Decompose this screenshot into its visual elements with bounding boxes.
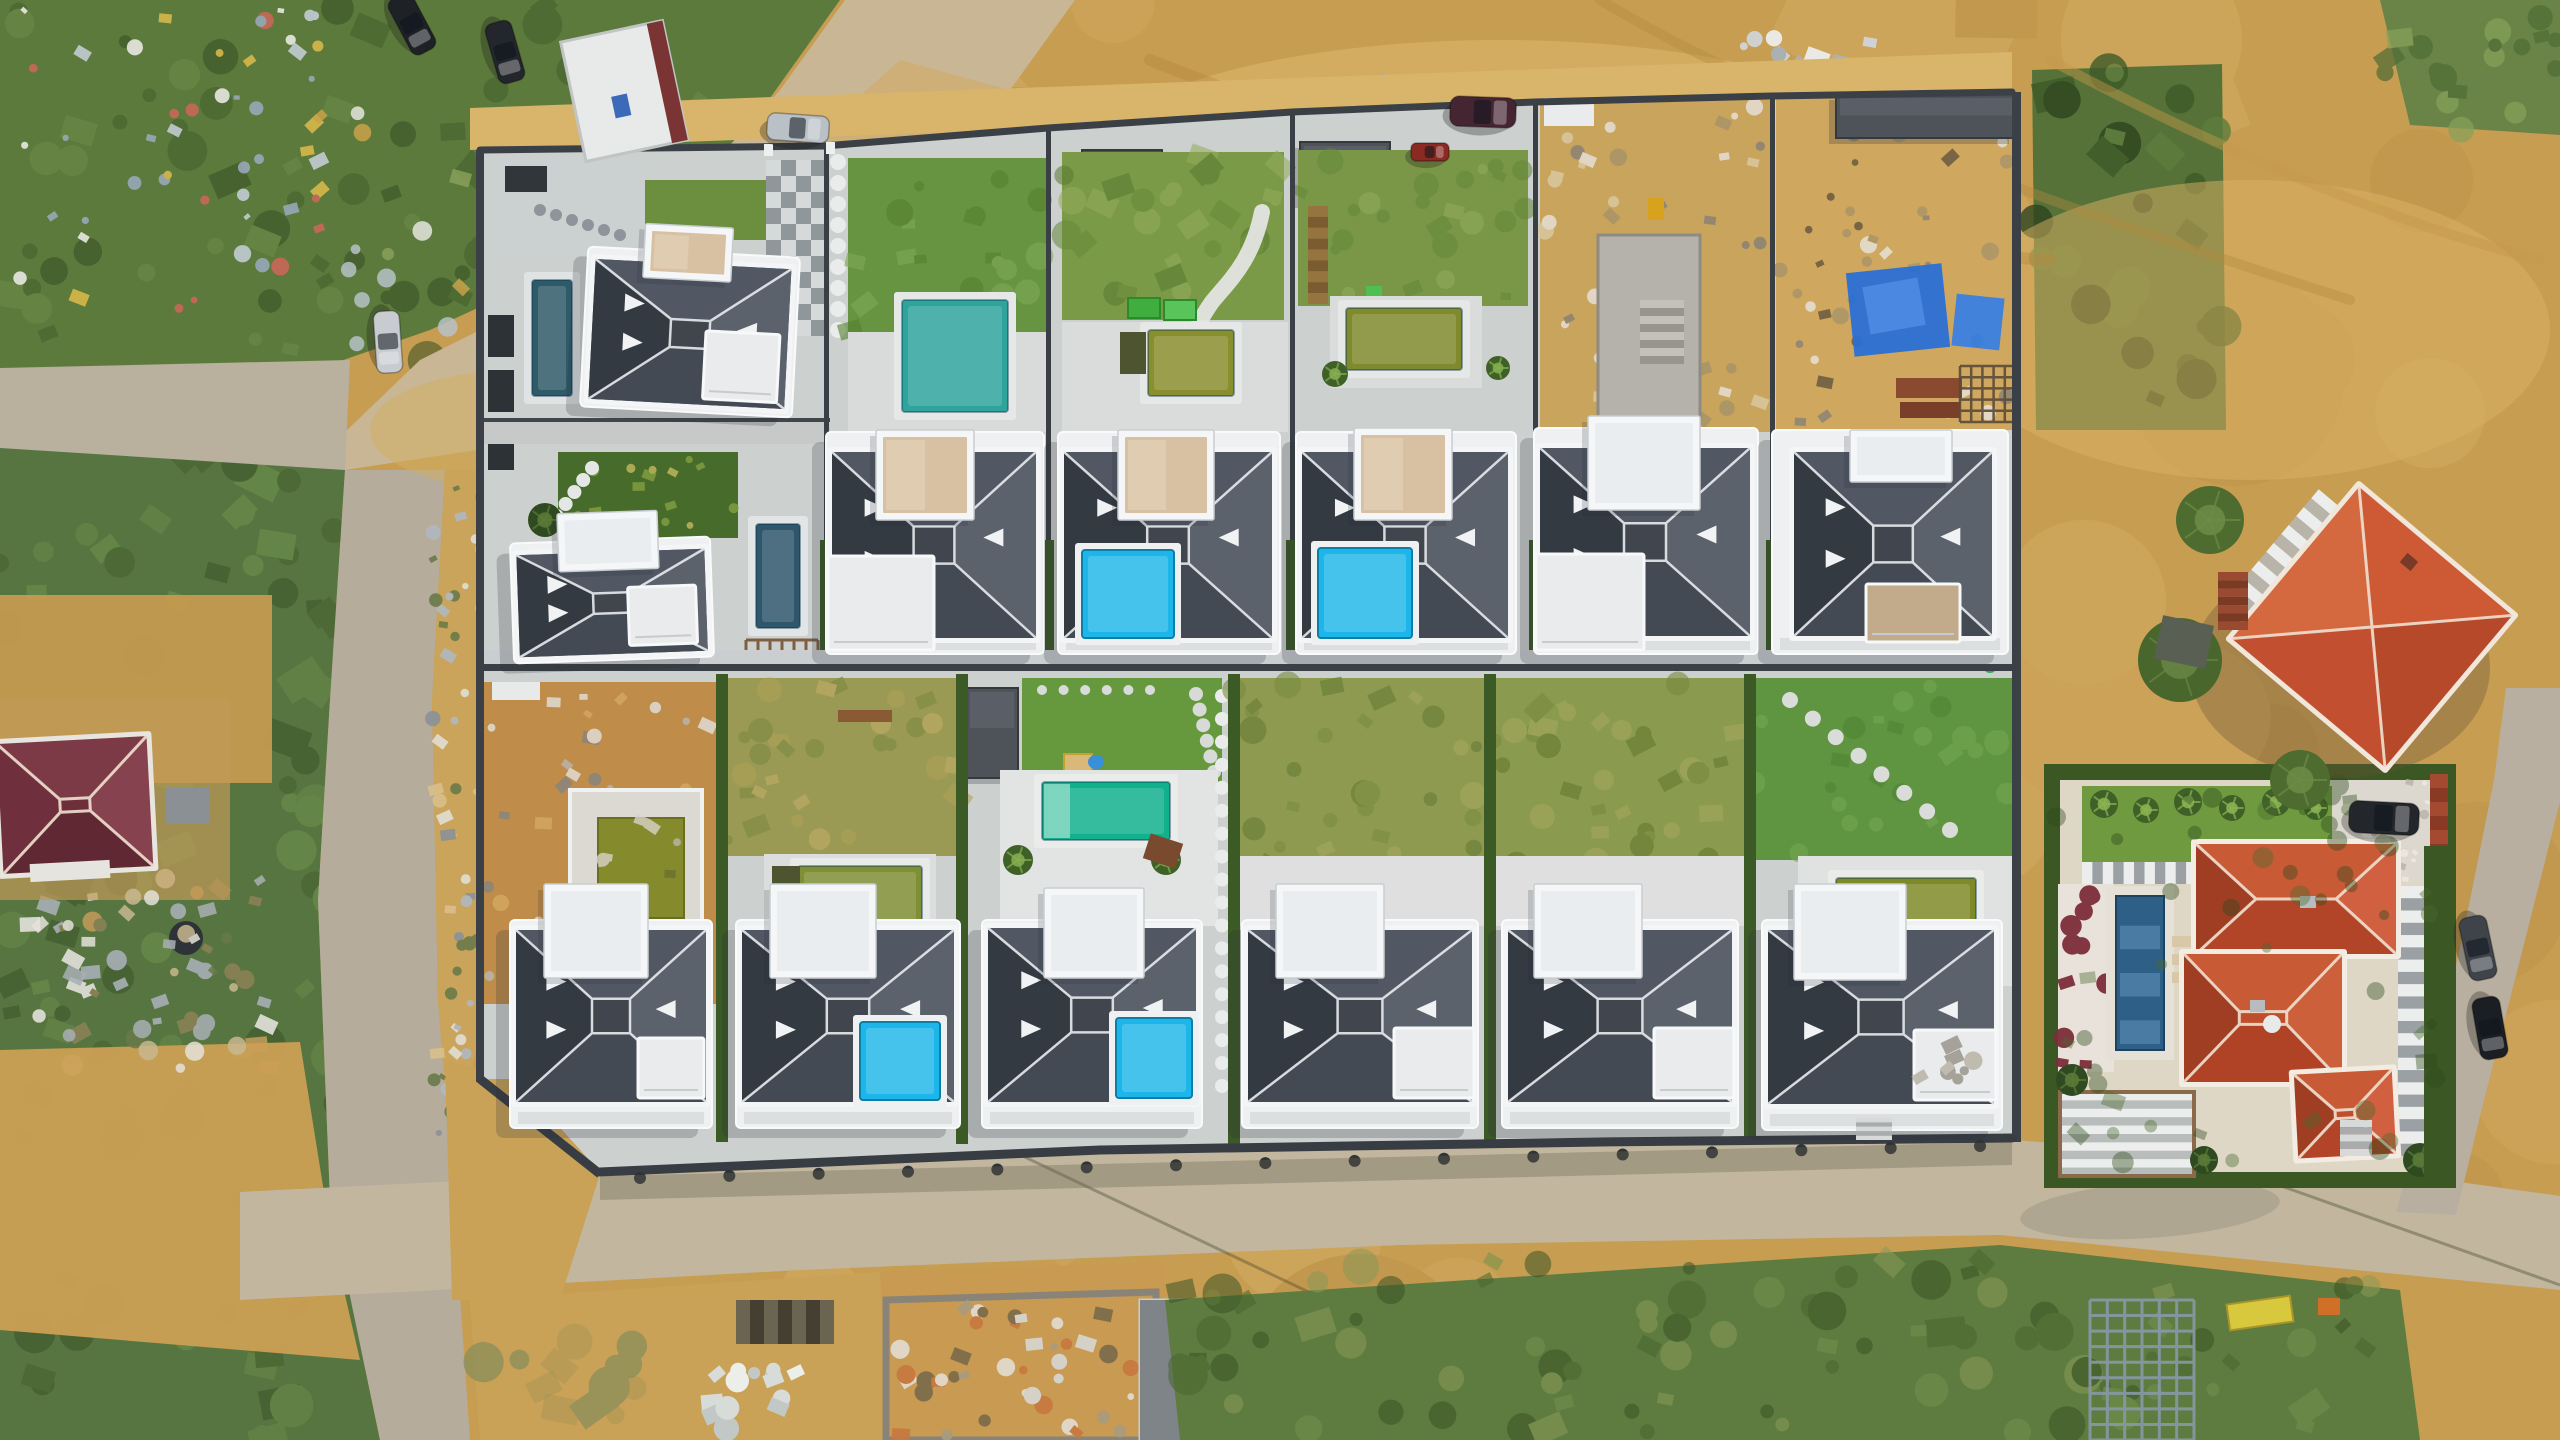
speck [2420, 810, 2430, 820]
speck [312, 195, 320, 203]
speck [499, 811, 510, 820]
speck [349, 336, 364, 351]
speck [1723, 723, 1747, 741]
speck [1015, 279, 1040, 304]
dot [1896, 785, 1912, 801]
speck [63, 920, 74, 931]
stripe [2398, 1082, 2426, 1094]
speck [1869, 817, 1883, 831]
speck [914, 254, 927, 264]
villa-pool-sheen [1122, 1024, 1186, 1092]
pool-plot3-olive [1140, 322, 1242, 404]
carport-sheen [970, 692, 1014, 728]
speck [1754, 715, 1768, 729]
speck [1913, 727, 1932, 746]
speck [133, 1020, 151, 1038]
speck [1495, 757, 1510, 772]
wall-right [2012, 92, 2021, 1142]
villa-terrace [990, 1112, 1194, 1124]
speck [997, 1358, 1015, 1376]
speck [1354, 781, 1380, 807]
dot [830, 175, 846, 191]
speck [1541, 1372, 1563, 1394]
car-glass [2374, 805, 2394, 832]
speck [661, 518, 669, 526]
speck [1160, 189, 1178, 207]
speck [1841, 815, 1858, 832]
skylight-sheen [653, 234, 689, 270]
speck [1794, 418, 1806, 427]
speck [2287, 1328, 2316, 1357]
speck [254, 154, 264, 164]
speck [1862, 256, 1872, 266]
red-house-scrub-3 [2270, 750, 2330, 810]
speck [588, 773, 601, 786]
stripe [1856, 1127, 1892, 1131]
speck [438, 621, 448, 628]
speck [1239, 716, 1267, 744]
stripe [2430, 830, 2448, 844]
speck [1054, 1374, 1064, 1384]
stripe [2218, 572, 2248, 580]
checker-cell [811, 208, 826, 224]
speck [255, 258, 269, 272]
dot [1828, 729, 1844, 745]
villa-bottom-1 [496, 884, 712, 1138]
skylight-sheen [886, 440, 925, 510]
speck [1630, 834, 1654, 858]
stripe [1856, 1118, 1892, 1122]
speck [1664, 822, 1680, 838]
speck [1608, 196, 1619, 207]
roof-ridge-cap [593, 592, 631, 614]
speck [1775, 1418, 1789, 1432]
speck [433, 793, 447, 807]
speck [1852, 159, 1859, 166]
speck [1287, 762, 1302, 777]
speck [1204, 240, 1221, 257]
roof-ridge-cap [1071, 998, 1113, 1033]
speck [1422, 705, 1444, 727]
speck [271, 258, 289, 276]
speck [587, 729, 602, 744]
speck [991, 170, 1009, 188]
speck [1911, 1325, 1927, 1337]
speck [2253, 847, 2274, 868]
speck [445, 987, 457, 999]
speck [1915, 1373, 1949, 1407]
stripe [2082, 862, 2092, 884]
dot [1782, 692, 1798, 708]
dot [1215, 895, 1229, 909]
stripe [2398, 1009, 2426, 1021]
stripe [2430, 788, 2448, 802]
plotB1-white-blocks [492, 682, 540, 700]
speck [463, 1342, 503, 1382]
stripe [778, 1300, 792, 1344]
carport-sheen [1840, 98, 2012, 116]
speck [461, 689, 470, 698]
stripe [2113, 862, 2123, 884]
speck [1307, 1271, 1328, 1292]
speck [1610, 148, 1628, 166]
stripe [1856, 1136, 1892, 1140]
speck [673, 838, 681, 846]
speck [207, 238, 224, 255]
speck [2062, 934, 2082, 954]
speck [914, 181, 924, 191]
speck [215, 88, 230, 103]
speck [1015, 1313, 1028, 1323]
mid-wall [480, 664, 2012, 671]
speck [809, 828, 831, 850]
stripe [1308, 217, 1328, 228]
dot [576, 473, 590, 487]
villa-top-4 [1282, 428, 1516, 664]
plot3-pool-shade [1120, 332, 1146, 374]
car-hood [807, 118, 821, 140]
villa-pool-sheen [866, 1028, 934, 1094]
speck [617, 1331, 648, 1362]
speck [229, 983, 238, 992]
roof-ridge-cap [1858, 1000, 1903, 1035]
speck [1548, 173, 1562, 187]
roof-ridge-cap [1338, 999, 1383, 1033]
speck [1252, 1332, 1269, 1349]
speck [922, 713, 943, 734]
speck [127, 39, 143, 55]
skylight-pane [777, 891, 869, 971]
stripe [1640, 300, 1684, 308]
stripe [2155, 862, 2165, 884]
stripe [1640, 324, 1684, 332]
speck [886, 199, 913, 226]
speck [170, 903, 186, 919]
speck [390, 121, 416, 147]
speck [1436, 270, 1455, 289]
speck [2421, 905, 2438, 922]
speck [81, 937, 95, 947]
speck [1526, 1337, 1545, 1356]
speck [338, 173, 370, 205]
stripe [1308, 260, 1328, 271]
checker-cell [766, 176, 781, 192]
speck [236, 970, 255, 989]
speck [1127, 1393, 1134, 1400]
speck [1668, 1280, 1706, 1318]
speck [1746, 98, 1763, 115]
speck [1611, 720, 1632, 741]
villa-b6-steps [1856, 1118, 1892, 1140]
checker-cell [781, 176, 796, 192]
speck [107, 950, 127, 970]
stripe [2092, 862, 2102, 884]
speck [2448, 117, 2474, 143]
speck [915, 1383, 933, 1401]
speck [1438, 1366, 1464, 1392]
stripe [2218, 580, 2248, 588]
speck [579, 694, 587, 700]
speck [351, 106, 365, 120]
estate-palm-row-4 [2219, 795, 2245, 821]
stripe [1640, 348, 1684, 356]
speck [2379, 910, 2389, 920]
skylight-pane [1857, 437, 1945, 475]
checker-cell [811, 304, 826, 320]
gate-pillar-1 [764, 144, 773, 156]
speck [1977, 1277, 2008, 1308]
gate-pillar-2 [826, 142, 835, 154]
checker-cell [811, 224, 826, 240]
estate-bush-1 [2056, 1064, 2088, 1096]
estate-palm-row-1 [2090, 790, 2118, 818]
speck [1993, 730, 2008, 745]
speck [2283, 865, 2298, 880]
dot [1037, 685, 1047, 695]
speck [451, 717, 459, 725]
speck [2355, 1100, 2375, 1120]
speck [2202, 788, 2222, 808]
speck [75, 523, 98, 546]
dot [830, 217, 846, 233]
red-house-scrub-1 [2176, 486, 2244, 554]
speck [1377, 1276, 1405, 1304]
dot [1102, 685, 1112, 695]
stripe [820, 1300, 834, 1344]
villa-garage-roof [1536, 554, 1644, 650]
speck [757, 677, 782, 702]
speck [429, 593, 443, 607]
speck [2043, 81, 2081, 119]
speck [1530, 804, 1555, 829]
stripe [736, 1300, 750, 1344]
roof-ridge-cap [1598, 999, 1643, 1033]
speck [112, 115, 127, 130]
dot [1215, 735, 1229, 749]
speck [104, 547, 135, 578]
checker-cell [811, 288, 826, 304]
checker-cell [811, 192, 826, 208]
speck [1478, 164, 1488, 174]
checker-cell [796, 320, 811, 336]
skylight-sheen [1364, 438, 1403, 510]
speck [13, 271, 26, 284]
car-glass [1425, 146, 1435, 158]
speck [388, 281, 419, 312]
speck [2321, 816, 2338, 833]
dot [598, 224, 610, 236]
speck [1051, 1354, 1067, 1370]
plot6-tarp-blue-2 [1951, 294, 2004, 351]
speck [2262, 943, 2272, 953]
speck [2345, 879, 2358, 892]
stripe [1308, 293, 1328, 304]
dot [1215, 987, 1229, 1001]
speck [2165, 84, 2194, 113]
checker-cell [811, 256, 826, 272]
plot6-dirt [1776, 96, 2012, 430]
speck [493, 895, 510, 912]
speck [1114, 1425, 1127, 1438]
dot [830, 280, 846, 296]
speck [1488, 159, 1504, 175]
stripe [2218, 597, 2248, 605]
speck [430, 1048, 445, 1059]
stripe [1640, 340, 1684, 348]
checker-cell [781, 192, 796, 208]
speck [1348, 204, 1360, 216]
speck [258, 289, 282, 313]
speck [1134, 208, 1161, 235]
plot4-palm-2 [1486, 356, 1510, 380]
plot6-brick-stack-1 [1896, 378, 1962, 398]
dot [1080, 685, 1090, 695]
plot1a-outdoor-kitchen [505, 166, 547, 192]
estate-pool-lanes [2120, 902, 2160, 1044]
estate-ac-unit-2 [2250, 1000, 2265, 1012]
speck [626, 464, 635, 473]
dot [1215, 781, 1229, 795]
speck [1832, 307, 1849, 324]
speck [664, 870, 676, 878]
speck [1952, 1073, 1963, 1084]
speck [1317, 148, 1343, 174]
dot [1215, 804, 1229, 818]
villa-pool-sheen [1088, 556, 1168, 632]
plotB3-blue-toy [1088, 755, 1104, 769]
speck [21, 293, 52, 324]
speck [2367, 982, 2385, 1000]
speck [1542, 215, 1557, 230]
car-hood [1493, 100, 1507, 124]
speck [1343, 1248, 1379, 1284]
speck [1274, 841, 1286, 853]
stripe [1856, 1131, 1892, 1135]
speck [2111, 833, 2123, 845]
speck [1019, 1366, 1028, 1375]
speck [1359, 192, 1381, 214]
pool-sheen [1352, 314, 1456, 364]
pool-plot1b-dark [748, 516, 808, 636]
speck [445, 592, 453, 600]
speck [270, 1384, 314, 1428]
speck [1317, 728, 1332, 743]
speck [462, 583, 468, 589]
dot [830, 301, 846, 317]
speck [428, 1073, 441, 1086]
checker-cell [796, 192, 811, 208]
stripe [1308, 282, 1328, 293]
speck [1856, 1338, 1873, 1355]
dirt-below-road-left [470, 1272, 900, 1440]
speck [1456, 171, 1474, 189]
speck [1211, 1354, 1239, 1382]
speck [2000, 154, 2014, 168]
stripe [2060, 1100, 2194, 1108]
speck [450, 783, 461, 794]
stripe [1640, 356, 1684, 364]
speck [2046, 807, 2066, 827]
stripe [1640, 332, 1684, 340]
roof-ridge-cap [592, 999, 630, 1033]
maroon-house-shed [166, 788, 210, 824]
speck [935, 1373, 948, 1386]
speck [62, 135, 68, 141]
dot [830, 238, 846, 254]
villa-garage-roof [828, 556, 934, 650]
speck [897, 1365, 916, 1384]
speck [683, 717, 690, 724]
villa-terrace [1510, 1112, 1730, 1124]
speck [1827, 193, 1835, 201]
orange-crate [2318, 1298, 2340, 1315]
speck [892, 1428, 910, 1440]
speck [1335, 1327, 1366, 1358]
speck [1025, 1337, 1043, 1351]
stripe [806, 1300, 820, 1344]
dot [582, 219, 594, 231]
speck [175, 304, 184, 313]
stripe [2398, 972, 2426, 984]
speck [255, 16, 266, 27]
speck [382, 248, 394, 260]
stripe [1640, 308, 1684, 316]
speck [1832, 797, 1847, 812]
stripe [2120, 902, 2160, 926]
estate-roof-south [2179, 949, 2347, 1087]
speck [1808, 1292, 1847, 1331]
speck [164, 171, 172, 179]
villa-pool-sheen [1324, 554, 1406, 632]
speck [1981, 243, 1999, 261]
speck [317, 287, 344, 314]
speck [1731, 112, 1738, 119]
plot2-trellis-scallop [830, 154, 846, 338]
pool-sheen [908, 306, 1002, 406]
speck [1168, 1356, 1208, 1396]
dot [1919, 803, 1935, 819]
speck [488, 724, 496, 732]
speck [2327, 831, 2347, 851]
speck [40, 257, 68, 285]
speck [138, 1041, 158, 1061]
villa-garage-roof [1394, 1028, 1474, 1098]
stripe [1856, 1122, 1892, 1126]
speck [1999, 389, 2014, 404]
speck [1917, 206, 1928, 217]
stripe [2340, 1142, 2372, 1149]
stripe [2218, 589, 2248, 597]
speck [1845, 206, 1855, 216]
car-glass [1473, 100, 1491, 125]
speck [309, 76, 315, 82]
pool-plot4-olive [1338, 300, 1470, 378]
speck [1854, 222, 1863, 231]
speck [732, 763, 756, 787]
stripe [792, 1300, 806, 1344]
stripe [2218, 622, 2248, 630]
stripe [2430, 816, 2448, 830]
stripe [2165, 862, 2175, 884]
speck [2076, 1030, 2092, 1046]
stripe [764, 1300, 778, 1344]
speck [1663, 1314, 1691, 1342]
dot [585, 461, 599, 475]
plotB2-bench [838, 710, 892, 722]
stripe [2176, 862, 2186, 884]
speck [1704, 216, 1717, 226]
villa-top-3 [1044, 430, 1280, 664]
